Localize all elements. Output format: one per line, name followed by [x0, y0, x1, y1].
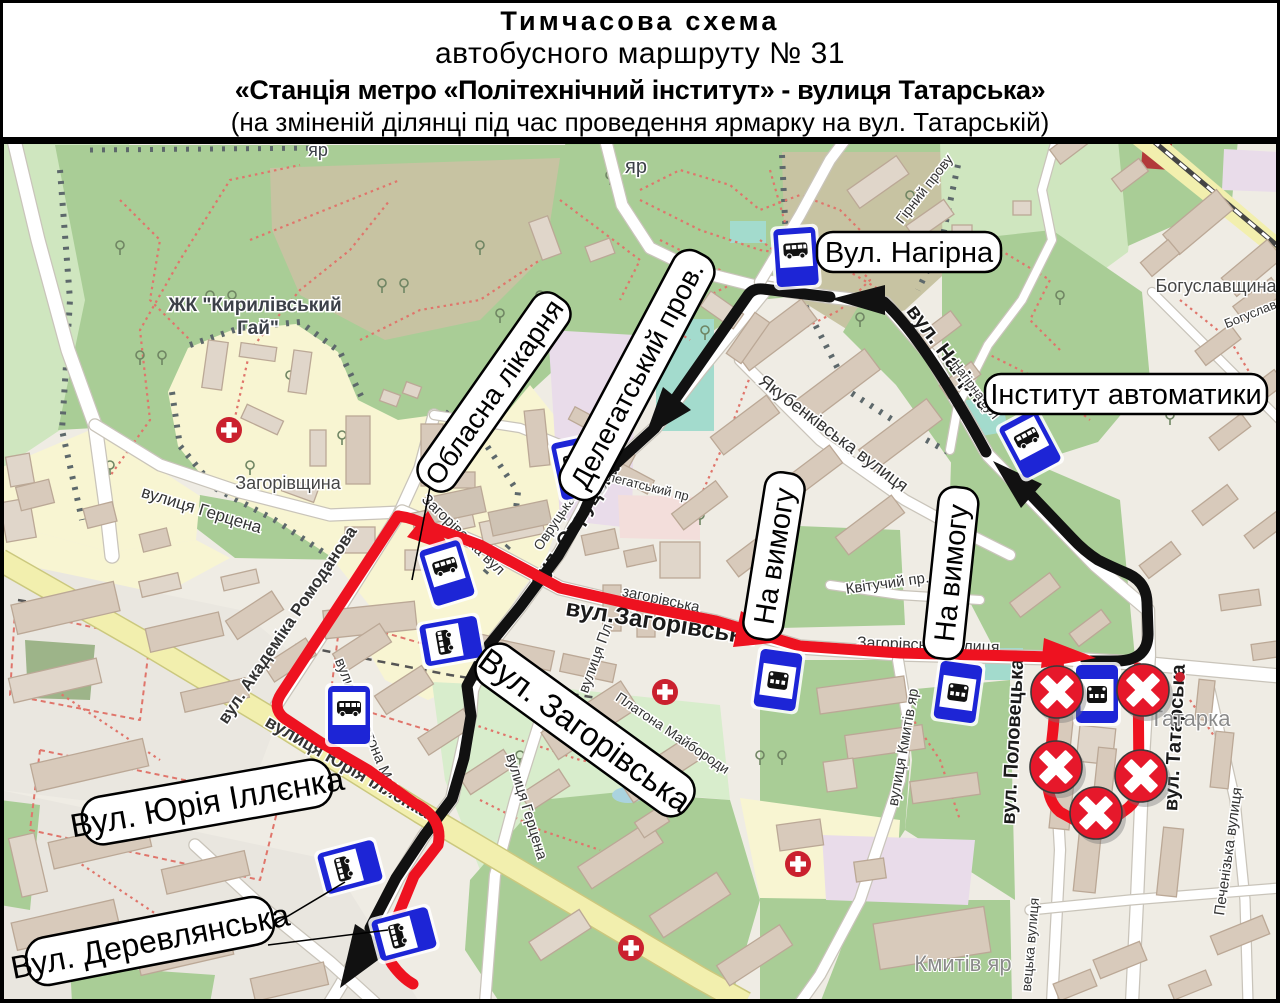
svg-text:яр: яр [625, 156, 647, 178]
svg-text:Вул. Нагірна: Вул. Нагірна [825, 237, 994, 269]
svg-text:Гай": Гай" [237, 318, 279, 339]
svg-text:Кмитів яр: Кмитів яр [914, 951, 1011, 976]
svg-text:Інститут автоматики: Інститут автоматики [990, 379, 1261, 411]
svg-text:Загорівщина: Загорівщина [235, 473, 341, 493]
svg-text:ЖК "Кирилівський: ЖК "Кирилівський [167, 295, 341, 316]
svg-text:Богуславщина: Богуславщина [1155, 276, 1277, 296]
